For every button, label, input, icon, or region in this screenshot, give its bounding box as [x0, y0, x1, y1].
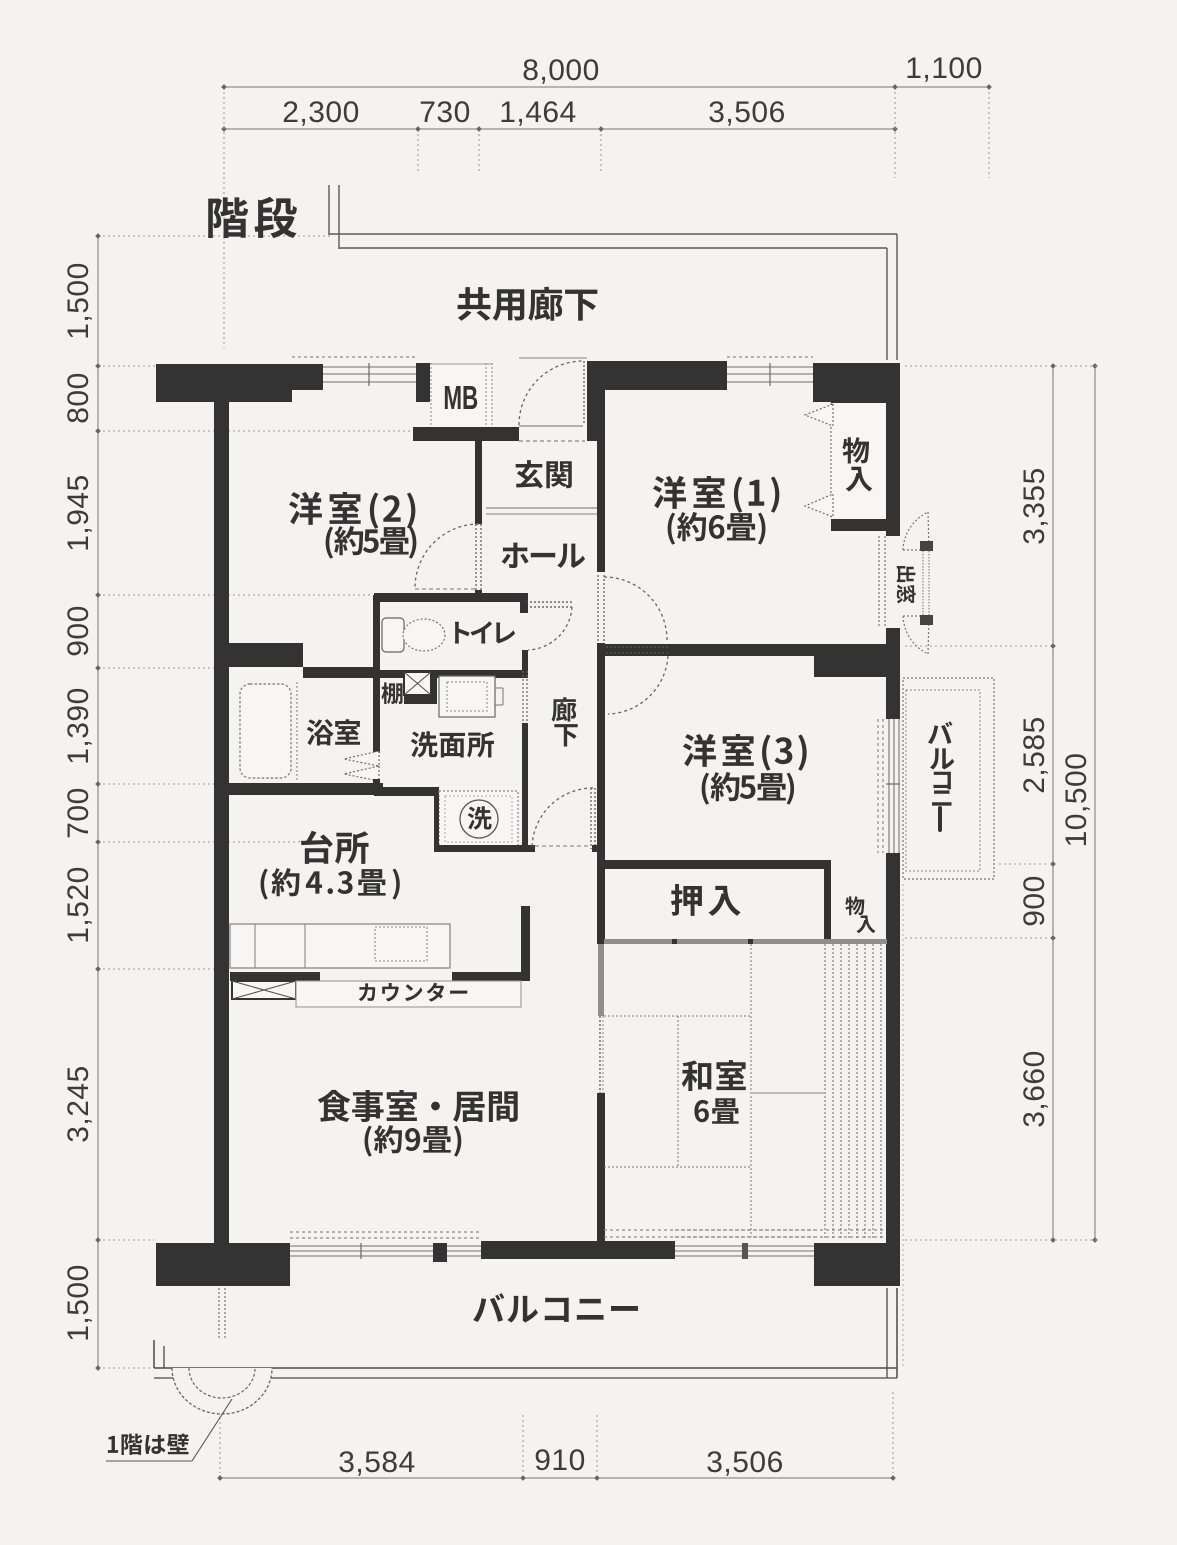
svg-text:1,500: 1,500: [62, 1264, 95, 1342]
svg-text:1,945: 1,945: [62, 474, 95, 552]
svg-text:910: 910: [534, 1444, 586, 1477]
svg-text:700: 700: [62, 787, 95, 839]
svg-text:3,584: 3,584: [338, 1446, 416, 1479]
svg-text:800: 800: [62, 372, 95, 424]
svg-text:1,390: 1,390: [62, 687, 95, 765]
svg-text:3,660: 3,660: [1018, 1050, 1051, 1128]
svg-text:10,500: 10,500: [1060, 753, 1093, 848]
svg-text:8,000: 8,000: [522, 54, 600, 87]
svg-text:3,506: 3,506: [708, 96, 786, 129]
svg-text:MB: MB: [443, 379, 478, 416]
svg-text:2,585: 2,585: [1018, 716, 1051, 794]
svg-text:2,300: 2,300: [282, 96, 360, 129]
svg-text:730: 730: [419, 96, 471, 129]
svg-text:1,520: 1,520: [62, 866, 95, 944]
svg-text:900: 900: [62, 605, 95, 657]
svg-text:1,100: 1,100: [905, 52, 983, 85]
svg-text:3,506: 3,506: [706, 1446, 784, 1479]
svg-text:1,500: 1,500: [62, 262, 95, 340]
svg-text:900: 900: [1018, 875, 1051, 927]
svg-text:3,355: 3,355: [1018, 467, 1051, 545]
svg-text:3,245: 3,245: [62, 1065, 95, 1143]
svg-text:1,464: 1,464: [499, 96, 577, 129]
